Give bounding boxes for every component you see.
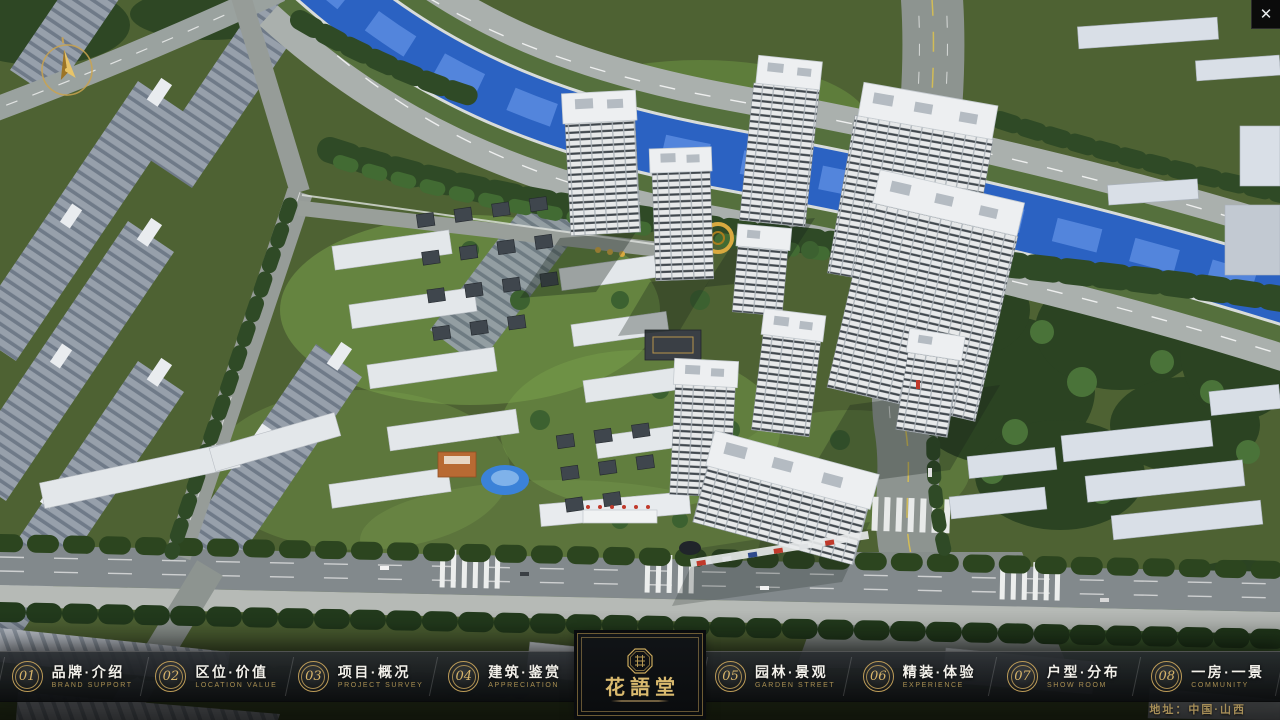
- nav-item-subtitle: COMMUNITY: [1191, 682, 1249, 689]
- nav-item-title: 建筑·鉴赏: [488, 665, 561, 680]
- nav-item-title: 项目·概况: [338, 665, 411, 680]
- menu-group-right: 05 园林·景观 GARDEN STREET 06 精装·体验 EXPERIEN…: [703, 652, 1280, 701]
- nav-item-title: 户型·分布: [1047, 665, 1120, 680]
- number-badge: 06: [863, 661, 894, 692]
- nav-item-title: 精装·体验: [903, 665, 976, 680]
- nav-item-subtitle: LOCATION VALUE: [195, 682, 277, 689]
- nav-item-title: 一房·一景: [1191, 665, 1264, 680]
- nav-item-interior-experience[interactable]: 06 精装·体验 EXPERIENCE: [847, 652, 991, 701]
- number-badge: 04: [448, 661, 479, 692]
- site-plan-render[interactable]: [0, 0, 1280, 720]
- close-icon: ✕: [1260, 5, 1273, 23]
- number-badge: 03: [298, 661, 329, 692]
- nav-item-location-value[interactable]: 02 区位·价值 LOCATION VALUE: [144, 652, 288, 701]
- nav-item-subtitle: SHOW ROOM: [1047, 682, 1107, 689]
- nav-item-room-view[interactable]: 08 一房·一景 COMMUNITY: [1136, 652, 1280, 701]
- nav-item-subtitle: PROJECT SURVEY: [338, 682, 424, 689]
- number-badge: 08: [1151, 661, 1182, 692]
- nav-item-subtitle: EXPERIENCE: [903, 682, 964, 689]
- nav-item-architecture[interactable]: 04 建筑·鉴赏 APPRECIATION: [433, 652, 577, 701]
- presentation-window: ✕ 01 品牌·介绍 BRAND SUPPORT 02 区位·价值 LOCATI…: [0, 0, 1280, 720]
- logo-caption-line: [611, 700, 669, 702]
- logo-seal-icon: [627, 648, 653, 674]
- nav-item-subtitle: APPRECIATION: [488, 682, 559, 689]
- nav-item-title: 区位·价值: [195, 665, 268, 680]
- nav-item-title: 园林·景观: [755, 665, 828, 680]
- menu-group-left: 01 品牌·介绍 BRAND SUPPORT 02 区位·价值 LOCATION…: [0, 652, 577, 701]
- number-badge: 02: [155, 661, 186, 692]
- nav-item-unit-distribution[interactable]: 07 户型·分布 SHOW ROOM: [992, 652, 1136, 701]
- nav-item-garden-landscape[interactable]: 05 园林·景观 GARDEN STREET: [703, 652, 847, 701]
- nav-item-title: 品牌·介绍: [52, 665, 125, 680]
- number-badge: 07: [1007, 661, 1038, 692]
- close-button[interactable]: ✕: [1251, 0, 1280, 29]
- project-logo[interactable]: 花語堂: [577, 633, 703, 716]
- project-address: 地址：中国·山西: [1149, 701, 1246, 717]
- nav-item-subtitle: BRAND SUPPORT: [52, 682, 133, 689]
- number-badge: 01: [12, 661, 43, 692]
- logo-title: 花語堂: [600, 676, 680, 698]
- nav-item-project-survey[interactable]: 03 项目·概况 PROJECT SURVEY: [289, 652, 433, 701]
- number-badge: 05: [715, 661, 746, 692]
- nav-item-brand-intro[interactable]: 01 品牌·介绍 BRAND SUPPORT: [0, 652, 144, 701]
- nav-item-subtitle: GARDEN STREET: [755, 682, 835, 689]
